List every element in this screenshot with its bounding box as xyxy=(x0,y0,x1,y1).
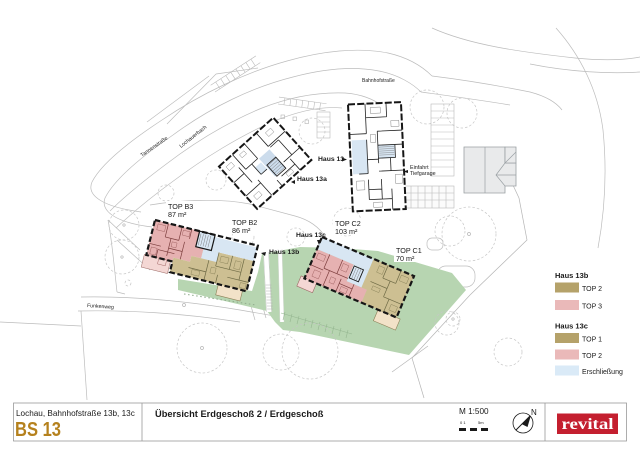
svg-text:TOP 2: TOP 2 xyxy=(582,286,602,293)
svg-text:revital: revital xyxy=(562,416,615,433)
svg-text:0 1: 0 1 xyxy=(460,420,466,425)
svg-text:87 m²: 87 m² xyxy=(168,210,187,219)
svg-text:Übersicht Erdgeschoß 2 / Erdge: Übersicht Erdgeschoß 2 / Erdgeschoß xyxy=(155,409,324,419)
svg-text:TOP 3: TOP 3 xyxy=(582,304,602,311)
svg-text:Haus 13a: Haus 13a xyxy=(297,176,327,183)
svg-text:Bahnhofstraße: Bahnhofstraße xyxy=(362,78,395,84)
svg-text:Lochau, Bahnhofstraße 13b, 13c: Lochau, Bahnhofstraße 13b, 13c xyxy=(16,409,135,418)
svg-text:Haus 13b: Haus 13b xyxy=(555,271,589,280)
svg-text:M 1:500: M 1:500 xyxy=(459,407,489,416)
svg-text:TOP 1: TOP 1 xyxy=(582,337,602,344)
svg-text:70 m²: 70 m² xyxy=(396,254,415,263)
svg-text:N: N xyxy=(531,408,537,417)
svg-text:Haus 13c: Haus 13c xyxy=(555,322,588,331)
svg-text:Tiefgarage: Tiefgarage xyxy=(410,171,436,177)
svg-text:Haus 13: Haus 13 xyxy=(318,156,344,163)
svg-text:TOP 2: TOP 2 xyxy=(582,353,602,360)
svg-text:5m: 5m xyxy=(478,420,484,425)
svg-text:Erschließung: Erschließung xyxy=(582,369,623,376)
svg-text:Haus 13b: Haus 13b xyxy=(269,249,299,256)
svg-text:Haus 13c: Haus 13c xyxy=(296,232,326,239)
svg-text:103 m²: 103 m² xyxy=(335,227,358,236)
svg-text:86 m²: 86 m² xyxy=(232,226,251,235)
svg-text:BS 13: BS 13 xyxy=(15,418,61,441)
